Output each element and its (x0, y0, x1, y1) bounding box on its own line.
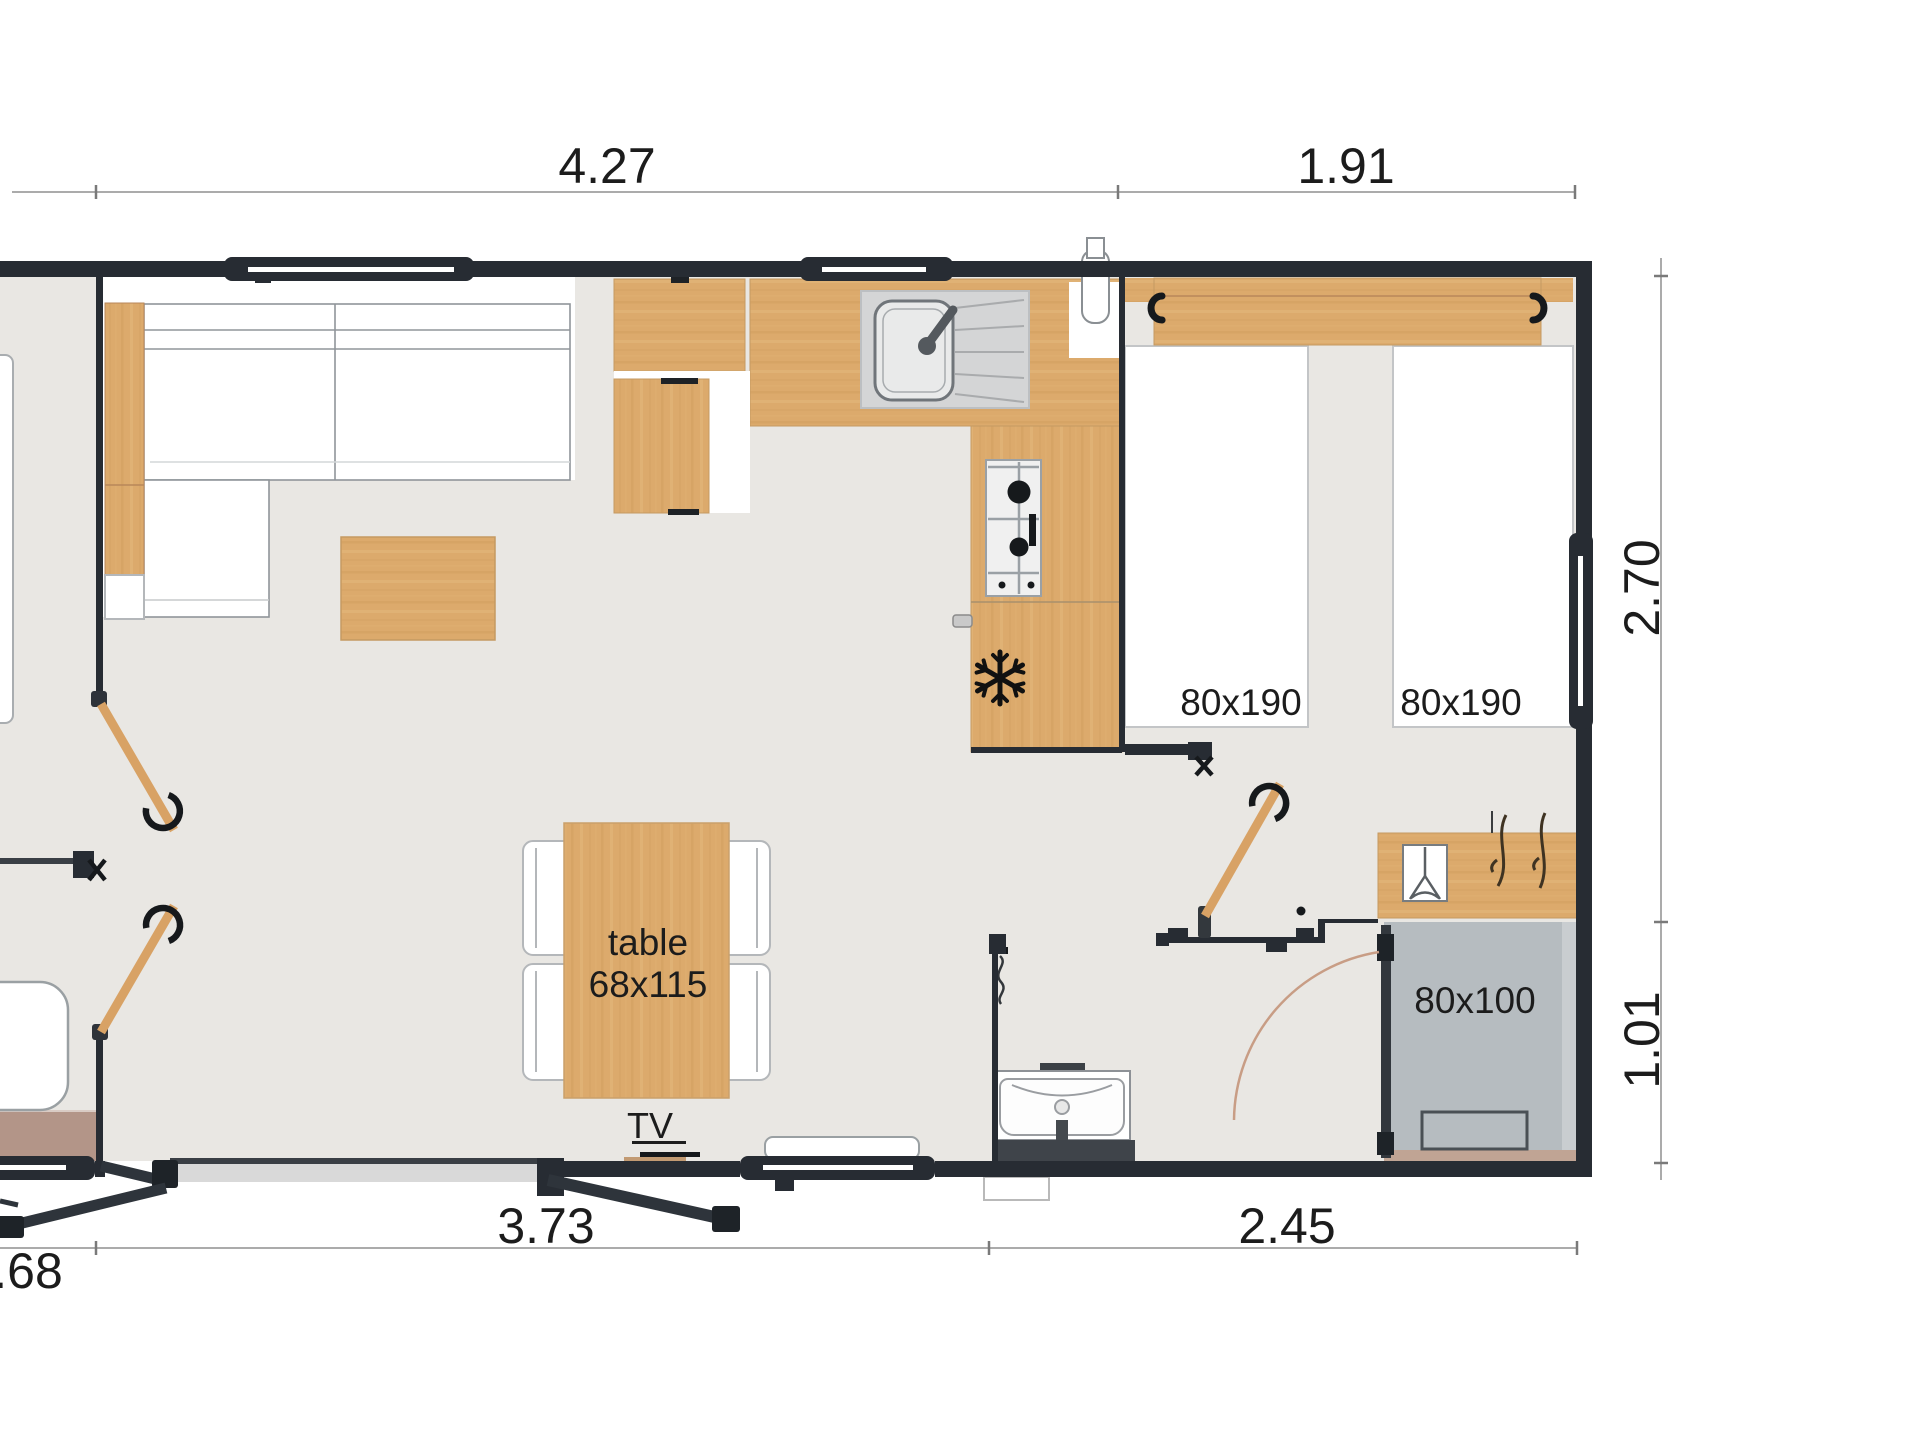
svg-text:4.27: 4.27 (558, 138, 655, 194)
svg-text:2.45: 2.45 (1238, 1198, 1335, 1254)
svg-text:80x190: 80x190 (1180, 682, 1301, 723)
svg-text:table: table (608, 922, 688, 963)
svg-text:80x190: 80x190 (1400, 682, 1521, 723)
svg-text:TV: TV (627, 1105, 673, 1146)
svg-text:.68: .68 (0, 1243, 63, 1299)
svg-text:2.70: 2.70 (1614, 539, 1670, 636)
svg-text:80x100: 80x100 (1414, 980, 1535, 1021)
svg-text:68x115: 68x115 (589, 964, 708, 1005)
svg-text:1.91: 1.91 (1297, 138, 1394, 194)
svg-text:1.01: 1.01 (1614, 991, 1670, 1088)
svg-text:3.73: 3.73 (497, 1198, 594, 1254)
